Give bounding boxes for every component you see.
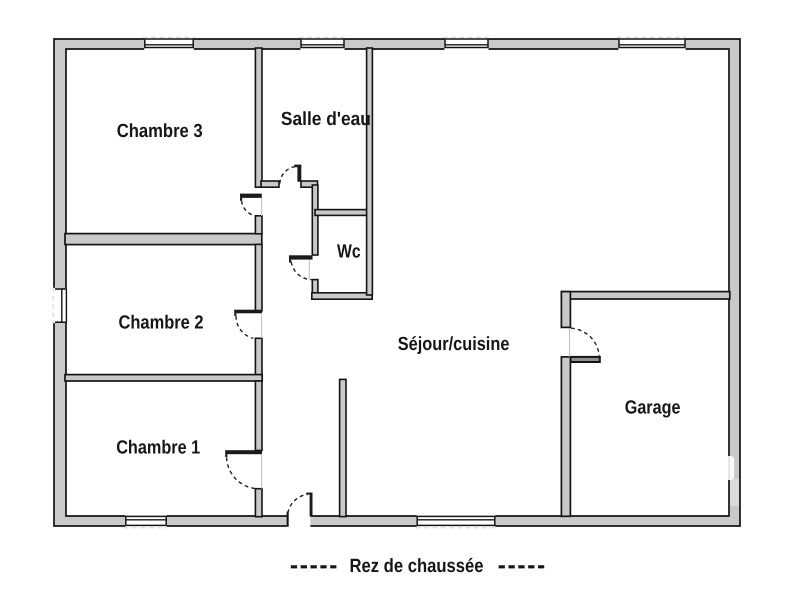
- svg-text:Rez de chaussée: Rez de chaussée: [350, 556, 484, 577]
- svg-text:Chambre 2: Chambre 2: [119, 312, 204, 333]
- svg-text:Chambre 3: Chambre 3: [117, 121, 203, 142]
- svg-text:Wc: Wc: [337, 241, 361, 262]
- svg-text:Séjour/cuisine: Séjour/cuisine: [398, 334, 510, 355]
- svg-text:Chambre 1: Chambre 1: [116, 437, 200, 458]
- svg-text:Garage: Garage: [625, 398, 681, 419]
- svg-text:Salle d'eau: Salle d'eau: [281, 109, 371, 130]
